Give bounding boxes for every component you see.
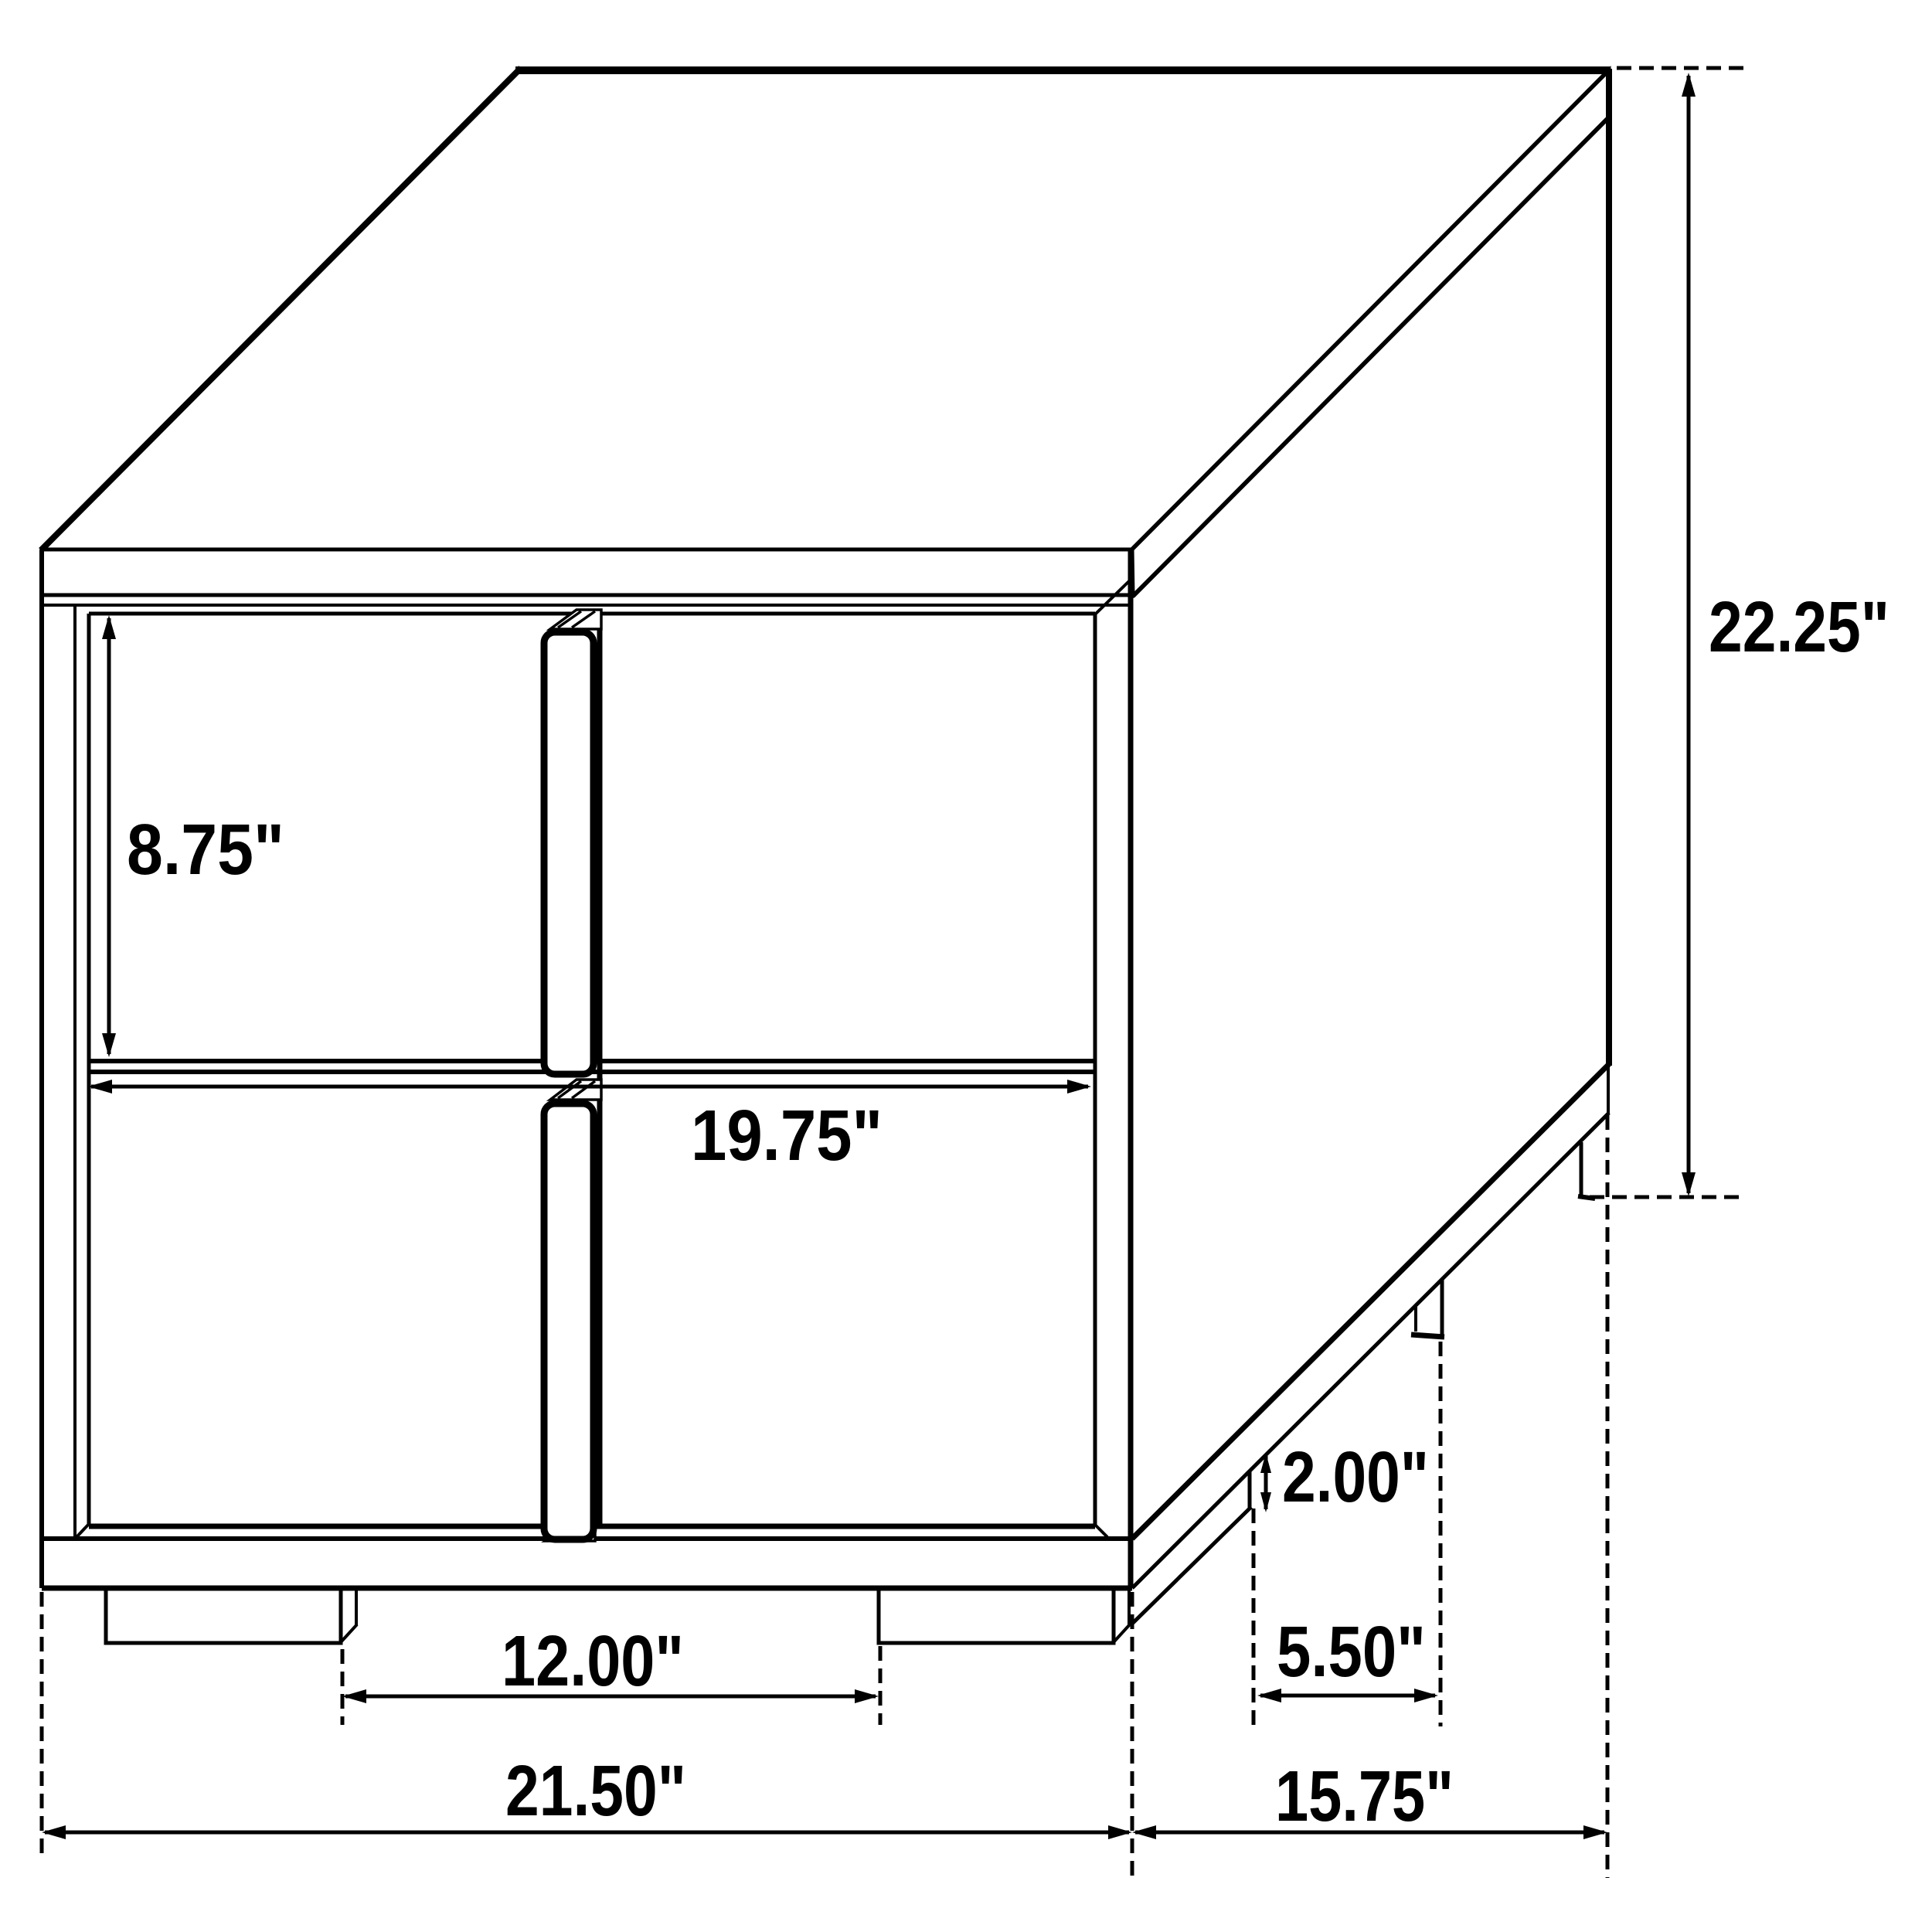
svg-text:5.50": 5.50": [1277, 1611, 1426, 1692]
svg-text:15.75": 15.75": [1275, 1756, 1454, 1836]
svg-text:22.25": 22.25": [1709, 587, 1889, 667]
svg-text:21.50": 21.50": [505, 1750, 686, 1831]
svg-text:12.00": 12.00": [502, 1621, 684, 1701]
svg-text:19.75": 19.75": [691, 1095, 883, 1175]
svg-text:8.75": 8.75": [127, 809, 284, 889]
svg-text:2.00": 2.00": [1282, 1437, 1429, 1517]
